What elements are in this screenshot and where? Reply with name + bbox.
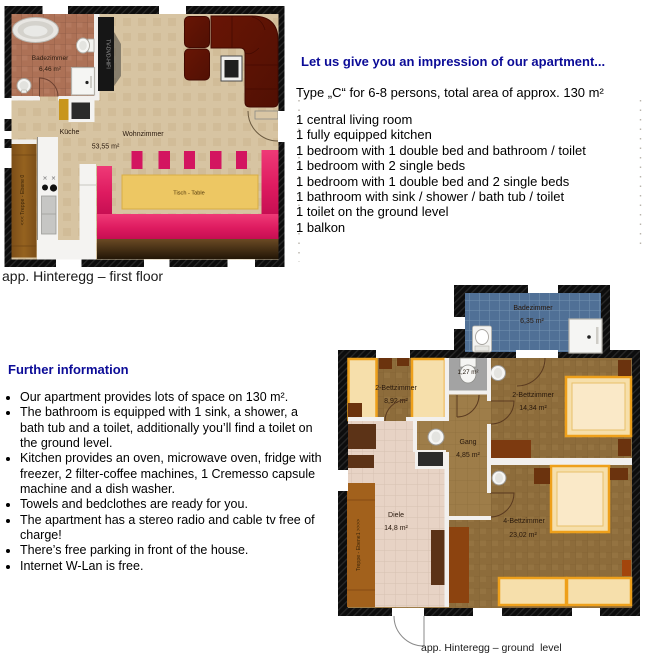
svg-text:1,27 m²: 1,27 m² [458, 369, 479, 376]
svg-text:14,34 m²: 14,34 m² [519, 405, 547, 412]
svg-text:2-Bettzimmer: 2-Bettzimmer [512, 392, 554, 399]
svg-text:TV-DVD-HIFI: TV-DVD-HIFI [105, 39, 111, 68]
svg-text:<<< Treppe - Ebene 0: <<< Treppe - Ebene 0 [20, 175, 26, 226]
svg-text:Badezimmer: Badezimmer [513, 305, 553, 312]
svg-text:8,92 m²: 8,92 m² [384, 398, 408, 405]
svg-text:Gang: Gang [459, 439, 476, 446]
svg-text:2-Bettzimmer: 2-Bettzimmer [375, 385, 417, 392]
svg-text:Wohnzimmer: Wohnzimmer [122, 131, 164, 138]
svg-text:4-Bettzimmer: 4-Bettzimmer [503, 518, 545, 525]
svg-text:4,85 m²: 4,85 m² [456, 452, 480, 459]
svg-text:Diele: Diele [388, 512, 404, 519]
svg-text:Treppe - Ebene1 >>>>: Treppe - Ebene1 >>>> [356, 519, 362, 571]
svg-text:6,35 m²: 6,35 m² [520, 318, 544, 325]
svg-text:6,46 m²: 6,46 m² [39, 66, 62, 73]
svg-text:14,8 m²: 14,8 m² [384, 525, 408, 532]
svg-text:Badezimmer: Badezimmer [32, 55, 69, 62]
svg-text:23,02 m²: 23,02 m² [509, 532, 537, 539]
svg-text:Tisch - Table: Tisch - Table [173, 191, 204, 197]
svg-text:Küche: Küche [60, 129, 80, 136]
svg-text:53,55 m²: 53,55 m² [92, 144, 120, 151]
